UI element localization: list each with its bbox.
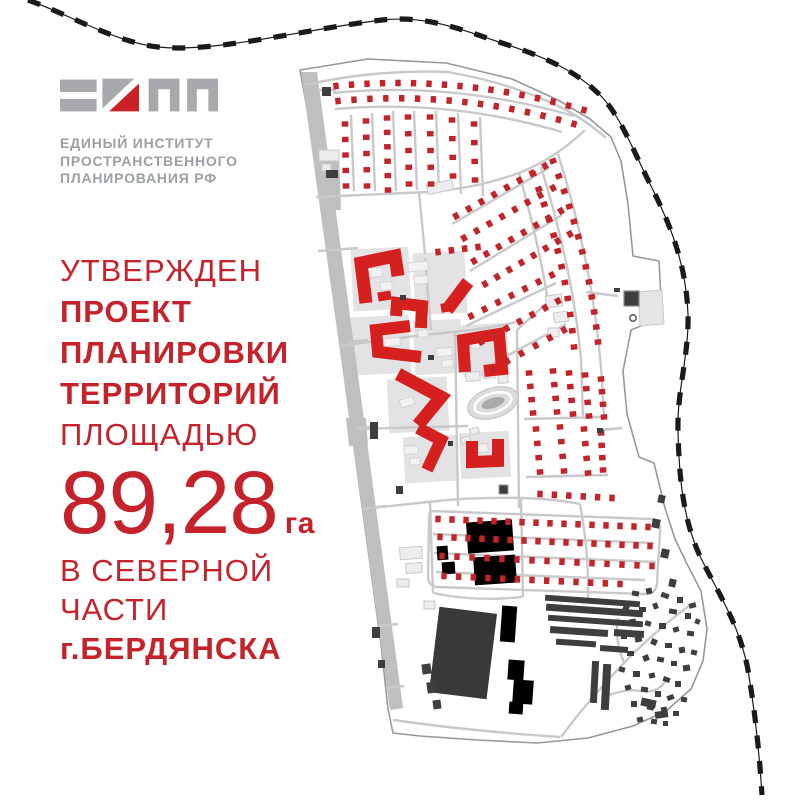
dark-buildings [322, 87, 701, 726]
logo-p-glyph [187, 79, 218, 112]
headline-line: ПЛАНИРОВКИ [60, 332, 370, 373]
logo-bar-top [60, 80, 97, 93]
brand-block: ЕДИНЫЙ ИНСТИТУТ ПРОСТРАНСТВЕННОГО ПЛАНИР… [60, 78, 320, 188]
org-name-line: ПРОСТРАНСТВЕННОГО [60, 153, 320, 171]
area-row: 89,28 га [60, 461, 370, 543]
logo-p-glyph [149, 79, 180, 112]
org-name-line: ПЛАНИРОВАНИЯ РФ [60, 170, 320, 188]
headline-line: г.БЕРДЯНСКА [60, 629, 370, 668]
logo-bar-bottom [60, 99, 97, 112]
poster: ЕДИНЫЙ ИНСТИТУТ ПРОСТРАНСТВЕННОГО ПЛАНИР… [0, 0, 800, 800]
institute-logo-icon [60, 78, 218, 112]
area-value: 89,28 [60, 461, 278, 543]
headline-line: ТЕРРИТОРИЙ [60, 373, 370, 414]
headline-line: УТВЕРЖДЕН [60, 250, 370, 291]
headline-line: ПРОЕКТ [60, 291, 370, 332]
org-name-line: ЕДИНЫЙ ИНСТИТУТ [60, 135, 320, 153]
headline-line: ПЛОЩАДЬЮ [60, 414, 370, 455]
stadium [464, 381, 523, 426]
area-unit: га [285, 507, 315, 541]
residential-blocks [350, 247, 511, 484]
org-name: ЕДИНЫЙ ИНСТИТУТ ПРОСТРАНСТВЕННОГО ПЛАНИР… [60, 135, 320, 188]
headline-line: В СЕВЕРНОЙ [60, 551, 370, 590]
cottage-houses [333, 80, 655, 588]
headline: УТВЕРЖДЕНПРОЕКТПЛАНИРОВКИТЕРРИТОРИЙПЛОЩА… [60, 250, 370, 668]
headline-line: ЧАСТИ [60, 590, 370, 629]
headline-top-lines: УТВЕРЖДЕНПРОЕКТПЛАНИРОВКИТЕРРИТОРИЙПЛОЩА… [60, 250, 370, 455]
headline-bottom-lines: В СЕВЕРНОЙЧАСТИг.БЕРДЯНСКА [60, 551, 370, 668]
light-buildings [319, 150, 664, 609]
red-apartment-buildings [361, 256, 534, 714]
